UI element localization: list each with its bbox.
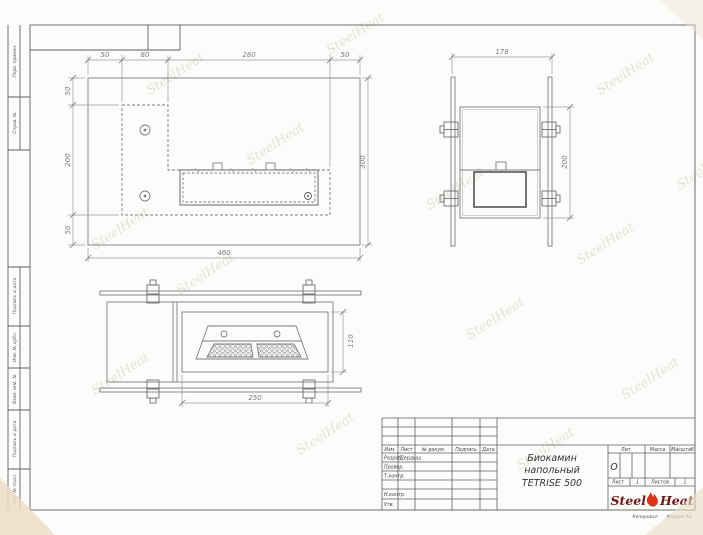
doc-title-line2: напольный — [524, 465, 580, 476]
strip-label-perv-primen: Перв. примен. — [12, 45, 18, 78]
strip-label-sprav-no: Справ. № — [12, 112, 18, 134]
side-body — [460, 107, 540, 218]
dim-front-top-3: 280 — [242, 51, 256, 59]
side-view-dim-labels: 178 200 — [495, 48, 569, 169]
scan-corner-artifacts — [0, 0, 703, 535]
sheet-value: 1 — [636, 480, 639, 486]
watermark-text: SteelHeat — [144, 50, 208, 99]
left-strip-labels: Перв. примен. Справ. № Подпись и дата Ин… — [12, 45, 18, 505]
front-burner-tab-right — [266, 163, 275, 170]
title-block — [382, 418, 695, 510]
dim-front-width: 460 — [217, 249, 231, 257]
lit-label: Лит. — [620, 447, 632, 453]
logo-steel-text: Steel — [611, 493, 647, 508]
top-glass-rear — [100, 291, 361, 295]
scale-label: Масштаб — [671, 447, 694, 453]
sheet-frame — [8, 25, 695, 510]
side-burner-tab — [496, 162, 506, 170]
dim-side-height: 200 — [561, 155, 569, 169]
watermark-text: SteelHeat — [574, 220, 638, 269]
mass-label: Масса — [650, 447, 665, 453]
flame-icon — [647, 493, 657, 507]
strip-label-vzam-inv: Взам. инв. № — [12, 374, 18, 404]
drawing-frame — [30, 25, 695, 510]
footer-copied: Копировал — [632, 514, 657, 520]
watermark-text: SteelHeat — [244, 120, 308, 169]
dim-front-top-4: 50 — [341, 51, 350, 59]
watermark-text: SteelHeat — [89, 205, 153, 254]
col-list: Лист — [399, 447, 412, 453]
col-izm: Изм. — [384, 447, 395, 453]
front-burner-inner — [183, 173, 315, 202]
strip-label-podpis-data-2: Подпись и дата — [12, 421, 18, 458]
strip-label-inv-dubl: Инв. № дубл. — [12, 332, 18, 362]
dim-front-left-2: 200 — [64, 153, 72, 167]
side-glass-rear — [451, 77, 455, 246]
watermark-text: SteelHeat — [594, 50, 658, 99]
front-view-dim-labels: 50 80 280 50 50 200 50 460 300 — [64, 51, 367, 257]
row-tkontr-label: Т.контр. — [384, 474, 405, 480]
row-nkontr-label: Н.контр. — [384, 492, 405, 498]
watermark-text: SteelHeat — [89, 350, 153, 399]
lit-value: О — [610, 462, 618, 473]
doc-title-line3: TETRISE 500 — [522, 478, 582, 489]
side-clips — [440, 122, 560, 206]
burner-grid-right — [257, 344, 301, 357]
dim-front-top-2: 80 — [141, 51, 150, 59]
col-podpis: Подпись — [455, 447, 477, 453]
sheets-label: Листов — [650, 480, 669, 486]
watermark-text: SteelHeat — [324, 10, 388, 59]
sheet-label: Лист — [611, 480, 624, 486]
strip-label-podpis-data-1: Подпись и дата — [12, 278, 18, 315]
dim-side-depth: 178 — [495, 48, 509, 56]
col-dokum: № докум. — [421, 447, 446, 453]
burner-grid-left — [207, 344, 253, 357]
dim-front-left-3: 50 — [64, 225, 72, 234]
row-utv-label: Утв. — [384, 502, 394, 508]
row-razrab-name: Дердыш — [399, 456, 422, 462]
row-prover-label: Провер. — [384, 465, 404, 471]
dim-front-height: 300 — [359, 155, 367, 169]
top-glass-front — [100, 388, 361, 392]
technical-drawing: SteelHeat SteelHeat SteelHeat SteelHeat … — [0, 0, 703, 535]
sheets-value: 1 — [683, 480, 686, 486]
top-view — [100, 280, 361, 403]
top-body — [107, 302, 333, 382]
front-burner-tab-left — [213, 163, 222, 170]
side-glass-front — [548, 77, 552, 246]
col-data: Дата — [481, 447, 494, 453]
front-burner-box — [180, 170, 318, 205]
dim-front-top-1: 50 — [101, 51, 110, 59]
watermark-text: SteelHeat — [674, 145, 703, 194]
watermark-text: SteelHeat — [619, 355, 683, 404]
top-clips — [147, 280, 315, 403]
dim-top-depth: 110 — [347, 334, 355, 348]
drawing-sheet: SteelHeat SteelHeat SteelHeat SteelHeat … — [0, 0, 703, 535]
doc-title-line1: Биокамин — [527, 453, 577, 464]
side-view — [440, 77, 560, 246]
burner-hole-left — [221, 331, 227, 337]
dim-top-burner-width: 250 — [248, 394, 262, 402]
watermark-text: SteelHeat — [464, 295, 528, 344]
watermark-text: SteelHeat — [294, 410, 358, 459]
burner-hole-right — [274, 331, 280, 337]
dim-front-left-1: 50 — [64, 86, 72, 95]
top-opening — [182, 312, 328, 372]
